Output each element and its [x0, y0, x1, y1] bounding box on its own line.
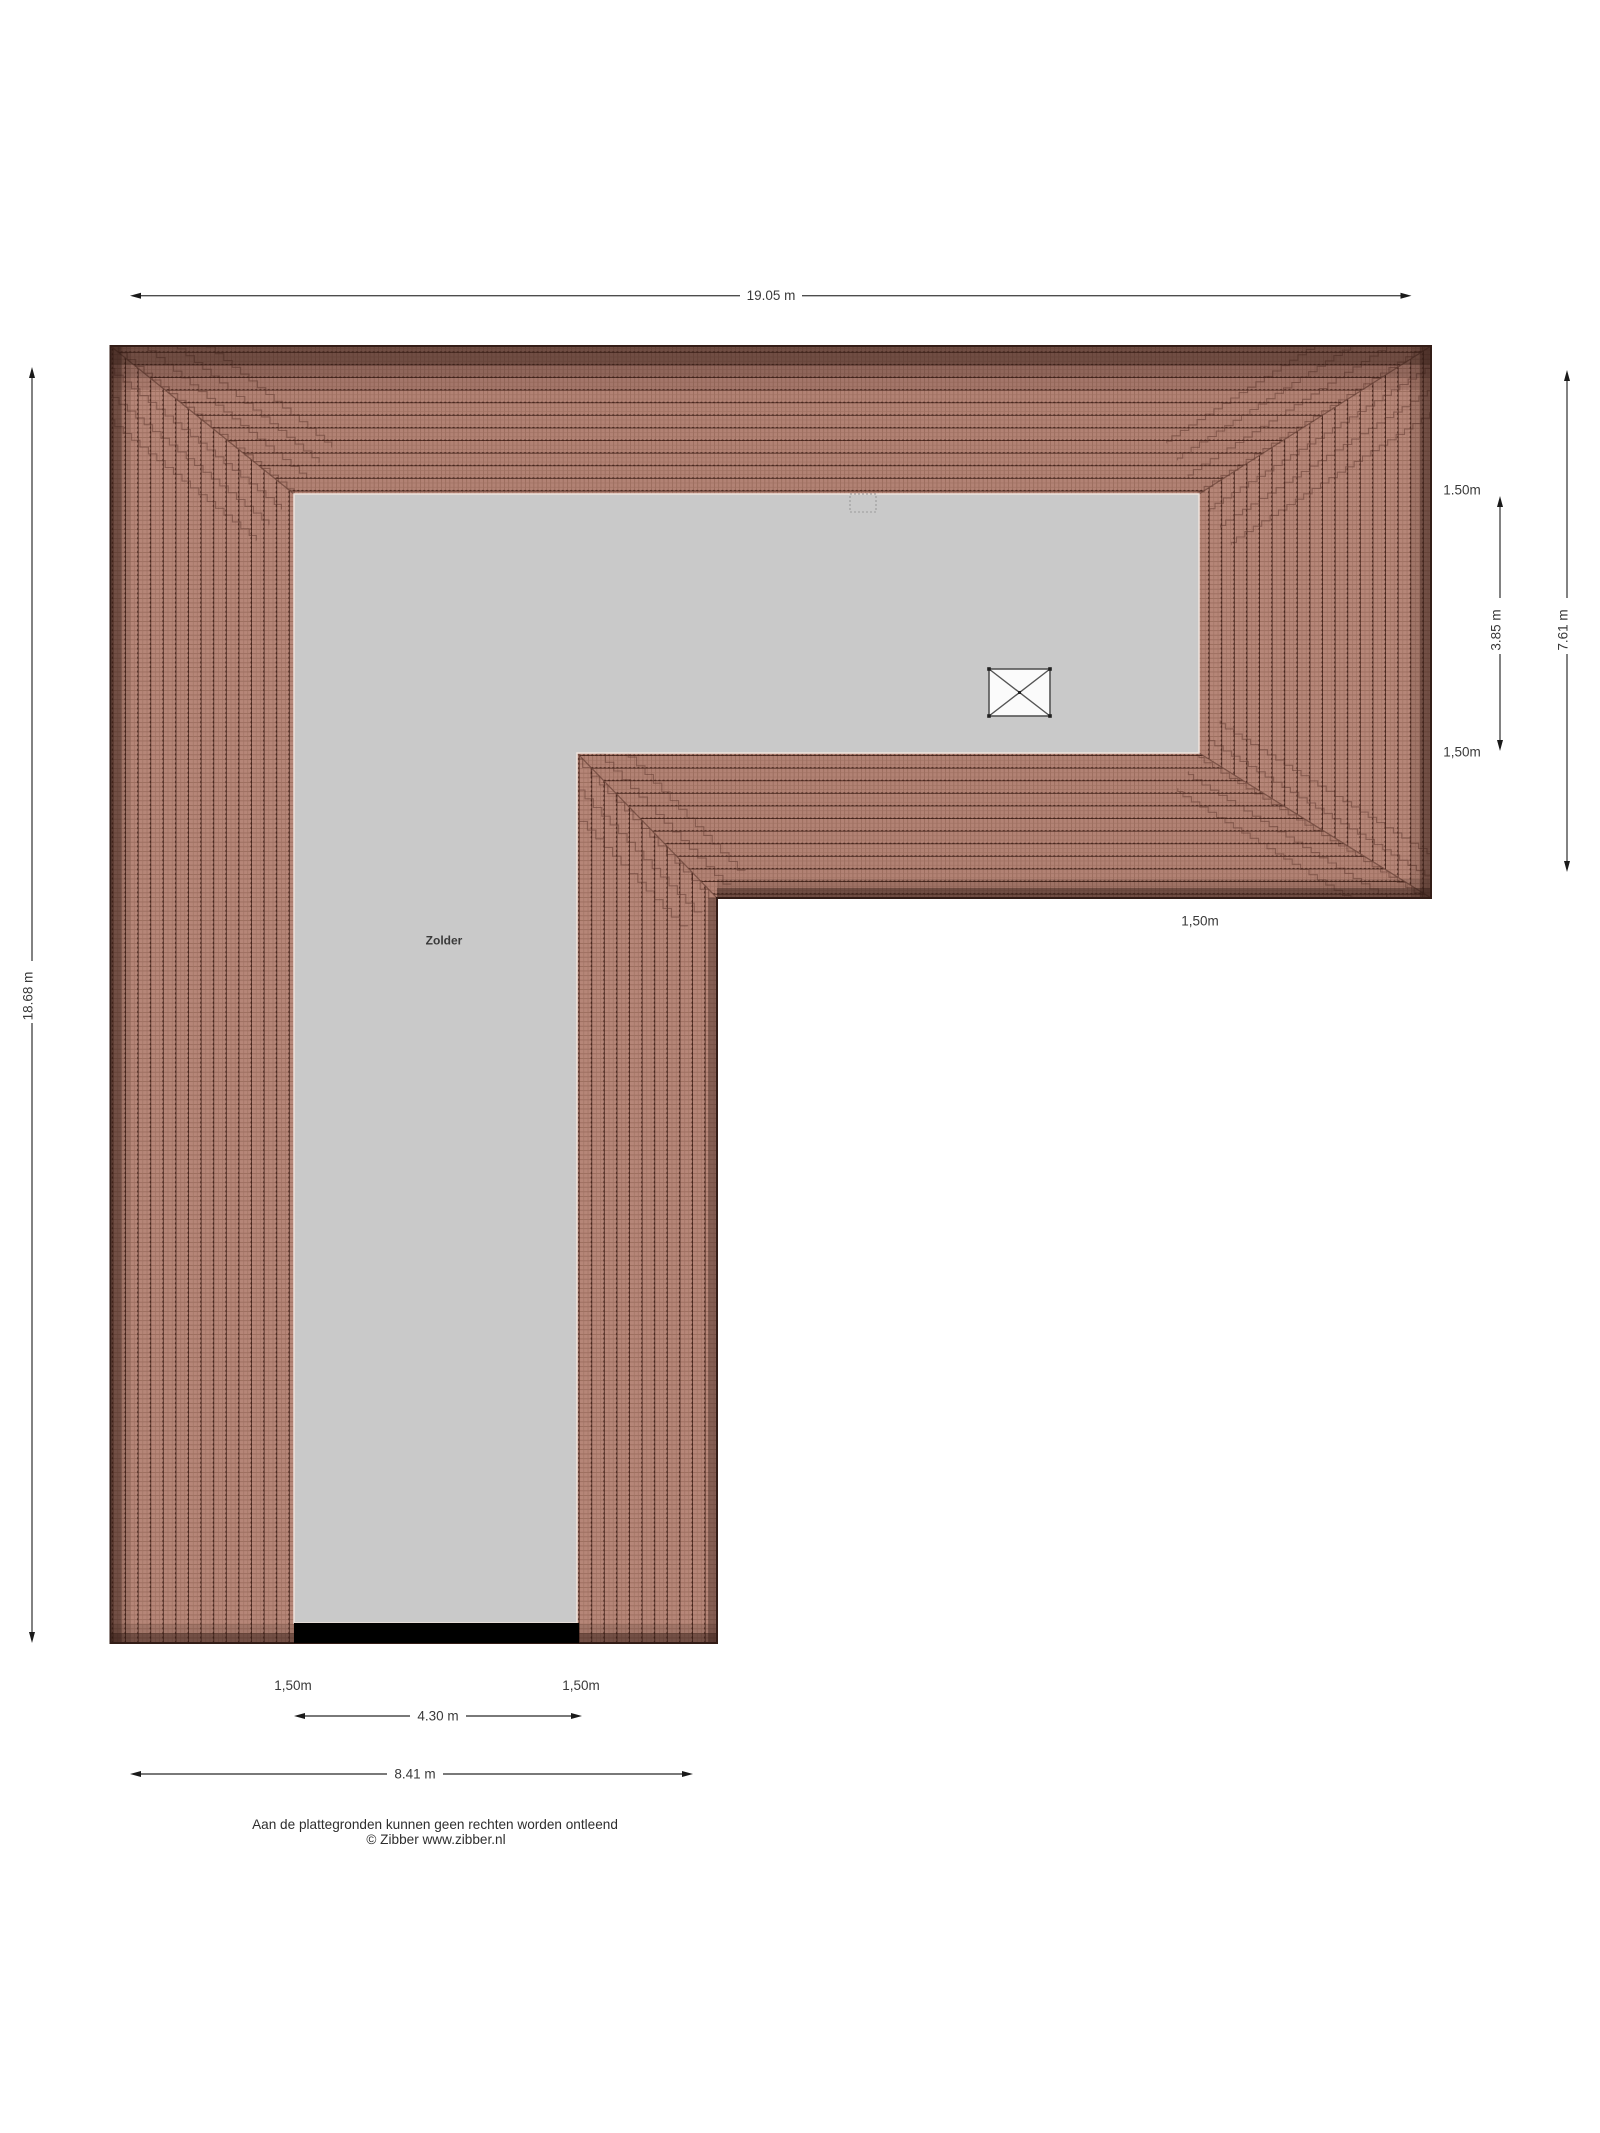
svg-text:© Zibber www.zibber.nl: © Zibber www.zibber.nl	[366, 1832, 505, 1847]
svg-text:Zolder: Zolder	[426, 934, 463, 948]
svg-text:Aan de plattegronden kunnen ge: Aan de plattegronden kunnen geen rechten…	[252, 1817, 618, 1832]
svg-text:1,50m: 1,50m	[1181, 914, 1219, 929]
svg-text:1.50m: 1.50m	[1443, 483, 1481, 498]
svg-text:7.61 m: 7.61 m	[1556, 609, 1571, 650]
svg-text:18.68 m: 18.68 m	[21, 972, 36, 1021]
svg-text:8.41 m: 8.41 m	[394, 1767, 435, 1782]
svg-text:1,50m: 1,50m	[1443, 745, 1481, 760]
svg-text:3.85 m: 3.85 m	[1489, 609, 1504, 650]
svg-text:4.30 m: 4.30 m	[417, 1709, 458, 1724]
svg-text:1,50m: 1,50m	[562, 1678, 600, 1693]
svg-text:19.05 m: 19.05 m	[747, 288, 796, 303]
svg-text:1,50m: 1,50m	[274, 1678, 312, 1693]
